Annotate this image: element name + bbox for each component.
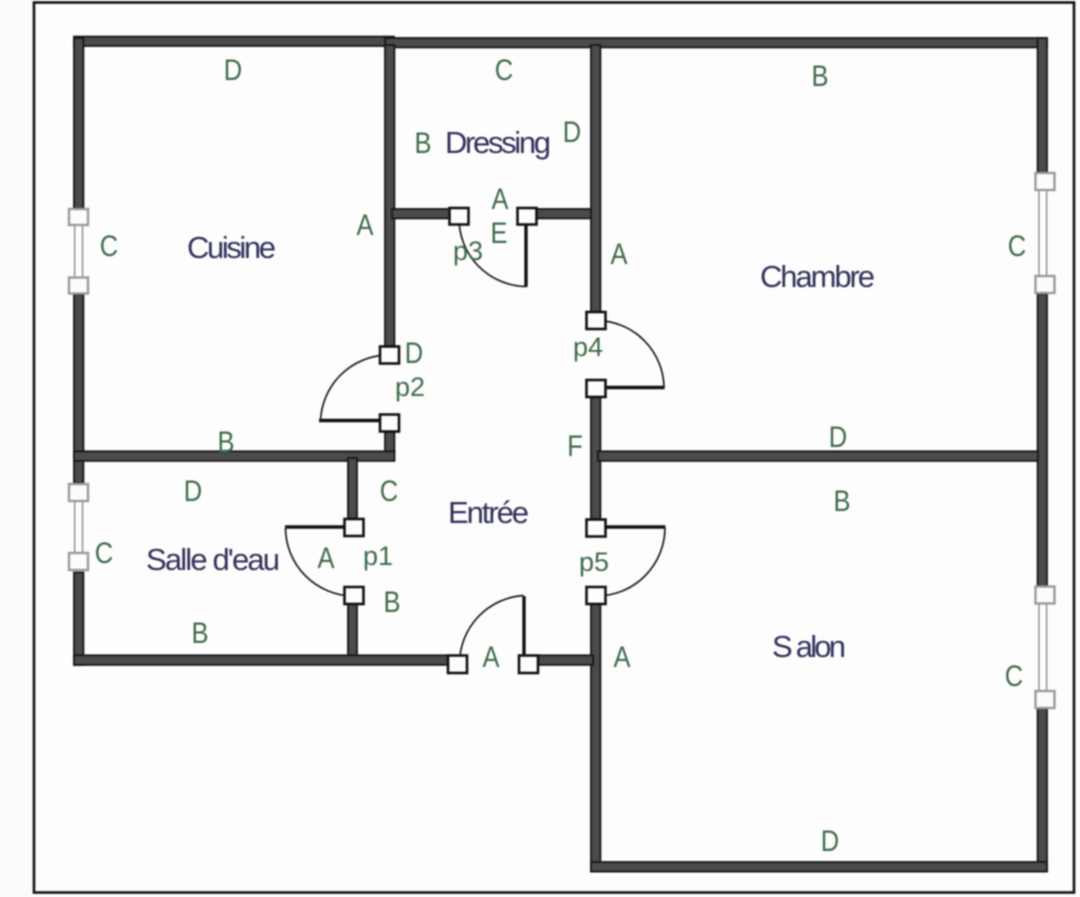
svg-text:D: D	[224, 53, 242, 86]
svg-text:D: D	[829, 420, 847, 453]
svg-text:B: B	[217, 425, 234, 458]
svg-text:C: C	[100, 229, 118, 262]
svg-text:Salle d'eau: Salle d'eau	[146, 542, 280, 577]
svg-text:B: B	[833, 484, 850, 517]
svg-text:Cuisine: Cuisine	[187, 230, 276, 265]
svg-text:B: B	[383, 585, 400, 618]
svg-text:C: C	[495, 53, 513, 86]
svg-text:p3: p3	[453, 236, 483, 266]
svg-text:F: F	[567, 429, 583, 462]
svg-text:A: A	[613, 640, 630, 673]
svg-text:B: B	[414, 126, 431, 159]
svg-text:A: A	[356, 208, 373, 241]
svg-text:p1: p1	[363, 541, 393, 571]
svg-text:B: B	[811, 59, 828, 92]
svg-text:D: D	[563, 115, 581, 148]
svg-text:E: E	[490, 216, 507, 249]
svg-text:A: A	[317, 541, 334, 574]
svg-text:Entrée: Entrée	[448, 495, 529, 530]
svg-text:C: C	[95, 536, 113, 569]
svg-text:B: B	[191, 616, 208, 649]
svg-text:C: C	[1008, 229, 1026, 262]
svg-text:Chambre: Chambre	[760, 259, 875, 294]
svg-text:D: D	[405, 336, 423, 369]
svg-text:A: A	[491, 182, 508, 215]
svg-text:p2: p2	[395, 372, 425, 402]
svg-text:Dressing: Dressing	[445, 125, 551, 160]
svg-text:D: D	[184, 474, 202, 507]
svg-text:A: A	[482, 640, 499, 673]
svg-text:D: D	[821, 824, 839, 857]
svg-text:A: A	[610, 237, 627, 270]
svg-text:p4: p4	[573, 332, 603, 362]
svg-text:C: C	[1005, 659, 1023, 692]
svg-text:p5: p5	[579, 547, 609, 577]
svg-text:C: C	[380, 474, 398, 507]
svg-text:S alon: S alon	[772, 629, 846, 664]
